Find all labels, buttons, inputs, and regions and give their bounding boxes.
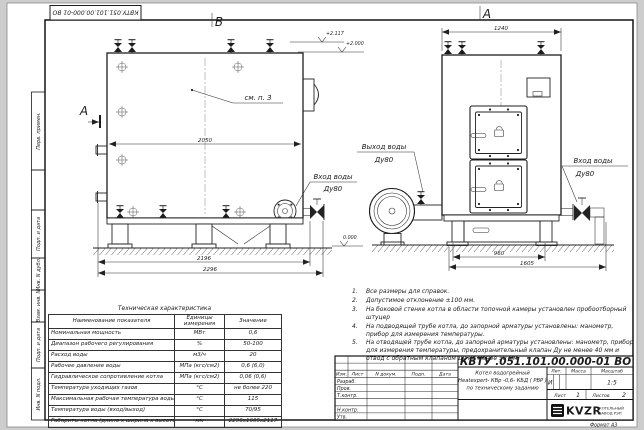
furnace-door-lower bbox=[470, 160, 527, 213]
cell-unit: °С bbox=[175, 395, 225, 406]
org-name-line2: ЗАВОД РЭП bbox=[599, 411, 622, 416]
table-header-row: Наименование показателя Единицы измерени… bbox=[49, 315, 282, 329]
margin-label-inv-dubl: Инв. N дубл. bbox=[36, 258, 42, 291]
table-row: Рабочее давление водыМПа (кгс/см2)0,6 (6… bbox=[49, 362, 282, 373]
view-b-label: В bbox=[215, 15, 223, 29]
cell-name: Гидравлическое сопротивление котла bbox=[49, 373, 175, 384]
view-a-label: А bbox=[482, 7, 491, 21]
elev-0000: 0.000 bbox=[343, 235, 357, 241]
furnace-door-upper bbox=[470, 106, 527, 159]
drawing-sheet: КВТУ.051.101.00.000-01 ВО Перв. примен. … bbox=[0, 0, 644, 430]
tech-table: Наименование показателя Единицы измерени… bbox=[48, 314, 282, 428]
cell-unit: м3/ч bbox=[175, 351, 225, 362]
table-row: Максимальная рабочая температура воды°С1… bbox=[49, 395, 282, 406]
tb-role-razrab: Разраб. bbox=[337, 379, 356, 385]
cell-value: 115 bbox=[225, 395, 282, 406]
margin-label-podp-data-1: Подп. и дата bbox=[36, 217, 42, 251]
dim-960: 960 bbox=[494, 251, 505, 257]
outlet-line1: Выход воды bbox=[362, 143, 407, 151]
note-text: Все размеры для справок. bbox=[366, 288, 449, 296]
col-header-name: Наименование показателя bbox=[49, 315, 175, 329]
cell-name: Максимальная рабочая температура воды bbox=[49, 395, 175, 406]
note-text: На боковой стенке котла в области топочн… bbox=[366, 306, 635, 322]
dim-2050: 2050 bbox=[198, 138, 212, 144]
table-row: Диапазон рабочего регулирования%50-100 bbox=[49, 340, 282, 351]
note-number: 2. bbox=[352, 297, 366, 305]
cell-name: Габариты котла (длина х ширина х высота) bbox=[49, 417, 175, 428]
section-a-label: А bbox=[79, 104, 88, 118]
cell-name: Температура уходящих газов bbox=[49, 384, 175, 395]
notes-list: 1.Все размеры для справок. 2.Допустимое … bbox=[352, 288, 635, 364]
col-header-value: Значение bbox=[225, 315, 282, 329]
tb-header-ndoc: N докум. bbox=[375, 372, 396, 378]
note-number: 3. bbox=[352, 306, 366, 322]
table-row: Температура воды (вход/выход)°С70/95 bbox=[49, 406, 282, 417]
cell-unit: МПа (кгс/см2) bbox=[175, 362, 225, 373]
cell-name: Номинальная мощность bbox=[49, 329, 175, 340]
cell-name: Температура воды (вход/выход) bbox=[49, 406, 175, 417]
margin-label-vzam-inv: Взам. инв. N bbox=[36, 290, 42, 323]
cell-value: не более 220 bbox=[225, 384, 282, 395]
cell-unit: % bbox=[175, 340, 225, 351]
tb-role-prov: Пров. bbox=[337, 386, 351, 392]
cell-unit: МПа (кгс/см2) bbox=[175, 373, 225, 384]
tb-header-mass: Масса bbox=[571, 369, 586, 375]
elev-2117: +2.117 bbox=[326, 31, 344, 37]
cell-name: Диапазон рабочего регулирования bbox=[49, 340, 175, 351]
cell-value: 0,6 bbox=[225, 329, 282, 340]
tech-characteristics: Техническая характеристика Наименование … bbox=[48, 305, 281, 428]
cell-value: 0,6 (6,0) bbox=[225, 362, 282, 373]
margin-label-podp-data-2: Подп. и дата bbox=[36, 328, 42, 362]
note-text: Допустимое отклонение ±100 мм. bbox=[366, 297, 475, 305]
note-text: На подводящей трубе котла, до запорной а… bbox=[366, 323, 635, 339]
note-number: 1. bbox=[352, 288, 366, 296]
see-note-text: см. п. 3 bbox=[244, 94, 271, 102]
outlet-line2: Ду80 bbox=[374, 156, 394, 164]
cell-unit: мм bbox=[175, 417, 225, 428]
cell-unit: МВт bbox=[175, 329, 225, 340]
tb-header-list: Лист bbox=[351, 372, 364, 378]
note-number: 5. bbox=[352, 339, 366, 363]
cell-value: 0,06 (0,6) bbox=[225, 373, 282, 384]
tb-header-scale: Масштаб bbox=[601, 369, 623, 375]
tb-lit-value: И bbox=[548, 380, 553, 387]
logo-text: KVZR bbox=[566, 405, 602, 418]
cell-unit: °С bbox=[175, 406, 225, 417]
cell-value: 50-100 bbox=[225, 340, 282, 351]
cell-value: 20 bbox=[225, 351, 282, 362]
tb-sheet-label: Лист bbox=[553, 393, 566, 399]
tb-role-nkontr: Н.контр. bbox=[337, 407, 358, 413]
tb-header-izm: Изм. bbox=[336, 372, 347, 378]
kvzr-logo: KVZR КОТЕЛЬНЫЙ ЗАВОД РЭП bbox=[551, 404, 624, 418]
format-note: Формат А3 bbox=[590, 423, 617, 429]
cell-name: Расход воды bbox=[49, 351, 175, 362]
inlet-left-line1: Вход воды bbox=[313, 173, 353, 181]
product-name-line1: Котел водогрейный bbox=[475, 371, 530, 377]
margin-label-perv-primen: Перв. примен. bbox=[36, 112, 42, 150]
inlet-right-line1: Вход воды bbox=[573, 157, 613, 165]
tb-role-tkontr: Т.контр. bbox=[337, 393, 358, 399]
tb-header-lit: Лит. bbox=[550, 369, 562, 375]
tb-sheets-label: Листов bbox=[591, 393, 609, 399]
table-row: Температура уходящих газов°Сне более 220 bbox=[49, 384, 282, 395]
tb-header-podp: Подп. bbox=[412, 372, 426, 378]
cell-name: Рабочее давление воды bbox=[49, 362, 175, 373]
table-row: Габариты котла (длина х ширина х высота)… bbox=[49, 417, 282, 428]
table-row: Гидравлическое сопротивление котлаМПа (к… bbox=[49, 373, 282, 384]
dim-2296: 2296 bbox=[203, 267, 217, 273]
product-name-line2: Heatexpert- КВр -0,6- КБД ( РВР ) bbox=[458, 378, 547, 384]
tb-sheets-no: 2 bbox=[622, 392, 626, 399]
tb-sheet-no: 1 bbox=[576, 392, 580, 399]
note-item: 1.Все размеры для справок. bbox=[352, 288, 635, 296]
tb-header-data: Дата bbox=[438, 372, 451, 378]
note-text: На отводящей трубе котла, до запорной ар… bbox=[366, 339, 635, 363]
elev-2000: +2.000 bbox=[346, 41, 364, 47]
table-row: Расход водым3/ч20 bbox=[49, 351, 282, 362]
note-item: 3.На боковой стенке котла в области топо… bbox=[352, 306, 635, 322]
title-block: КВТУ .051.101.00.000-01 ВО Изм. Лист N д… bbox=[335, 356, 633, 429]
top-stamp-text: КВТУ.051.101.00.000-01 ВО bbox=[52, 8, 138, 15]
dim-2196: 2196 bbox=[197, 256, 211, 262]
note-item: 4.На подводящей трубе котла, до запорной… bbox=[352, 323, 635, 339]
product-name-line3: по техническому заданию bbox=[466, 386, 539, 392]
top-stamp: КВТУ.051.101.00.000-01 ВО bbox=[50, 6, 141, 21]
note-number: 4. bbox=[352, 323, 366, 339]
cell-unit: °С bbox=[175, 384, 225, 395]
margin-label-inv-podl: Инв. N подл. bbox=[36, 377, 42, 410]
dim-1240: 1240 bbox=[494, 26, 508, 32]
inlet-right-line2: Ду80 bbox=[575, 170, 595, 178]
inlet-left-line2: Ду80 bbox=[323, 185, 343, 193]
tech-table-title: Техническая характеристика bbox=[48, 305, 281, 312]
dim-1605: 1605 bbox=[520, 261, 534, 267]
tb-role-utv: Утв. bbox=[337, 414, 347, 420]
cell-value: 70/95 bbox=[225, 406, 282, 417]
note-item: 2.Допустимое отклонение ±100 мм. bbox=[352, 297, 635, 305]
col-header-unit: Единицы измерения bbox=[175, 315, 225, 329]
cell-value: 2296х1605х2117 bbox=[225, 417, 282, 428]
tb-scale-value: 1:5 bbox=[607, 380, 617, 387]
table-row: Номинальная мощностьМВт0,6 bbox=[49, 329, 282, 340]
note-item: 5.На отводящей трубе котла, до запорной … bbox=[352, 339, 635, 363]
